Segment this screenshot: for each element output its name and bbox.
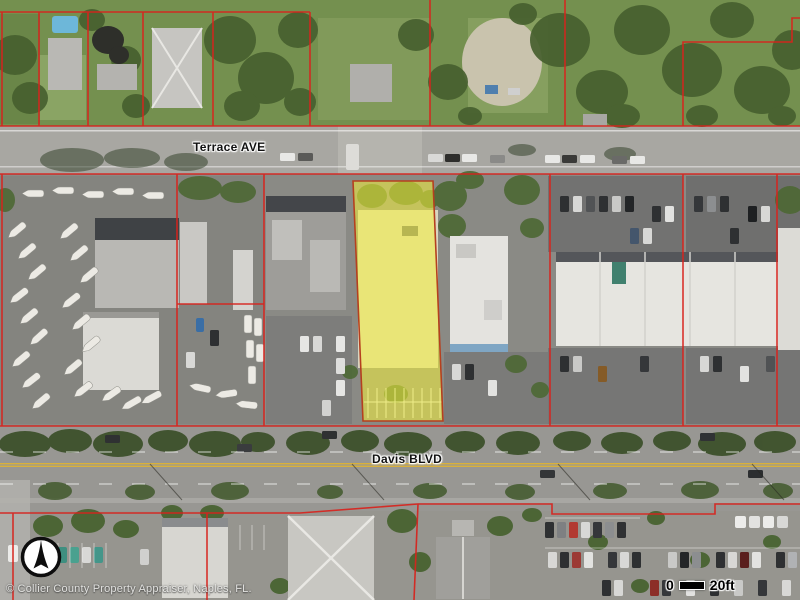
scale-bar-end-label: 20ft [710,577,735,593]
north-arrow-icon [23,539,60,576]
aerial-photo-layer [0,0,800,600]
scale-bar-segment [679,581,705,590]
scale-bar-start-label: 0 [666,577,674,593]
street-label-terrace-ave: Terrace AVE [193,140,265,154]
street-label-davis-blvd: Davis BLVD [372,452,442,466]
aerial-map[interactable]: Terrace AVE Davis BLVD 0 20ft © Collier … [0,0,800,600]
attribution-watermark: © Collier County Property Appraiser, Nap… [6,583,252,595]
highlighted-parcel[interactable] [353,181,443,421]
scale-bar: 0 20ft [666,577,735,593]
